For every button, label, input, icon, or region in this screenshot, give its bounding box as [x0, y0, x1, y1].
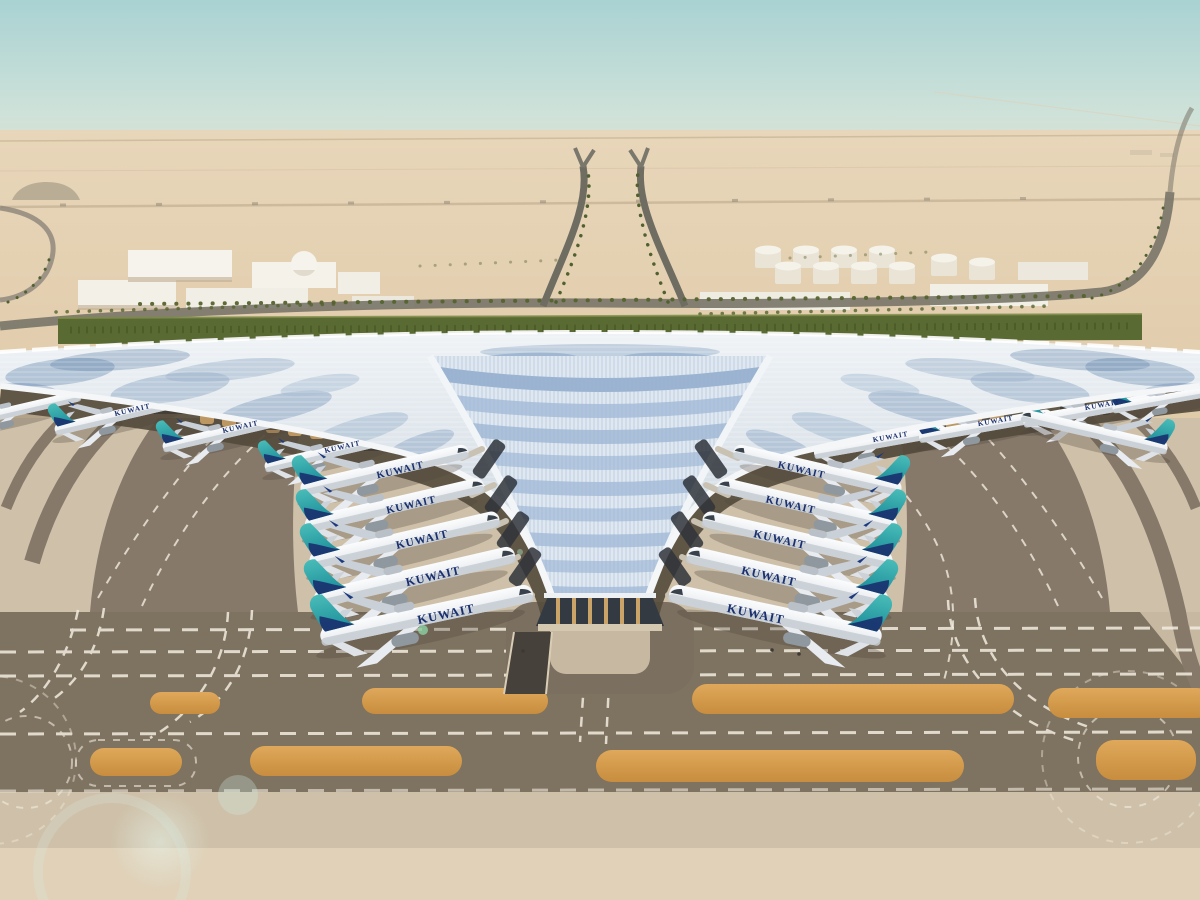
- scene-canvas: KUWAIT KUWAIT KUWAIT KUWAIT KUWAIT KUWAI…: [0, 0, 1200, 900]
- flare-dot: [517, 549, 523, 555]
- flare-dot: [418, 625, 428, 635]
- airport-rendering: KUWAIT KUWAIT KUWAIT KUWAIT KUWAIT KUWAI…: [0, 0, 1200, 900]
- terminal-entrance: [536, 593, 664, 631]
- entrance-glass: [536, 596, 664, 626]
